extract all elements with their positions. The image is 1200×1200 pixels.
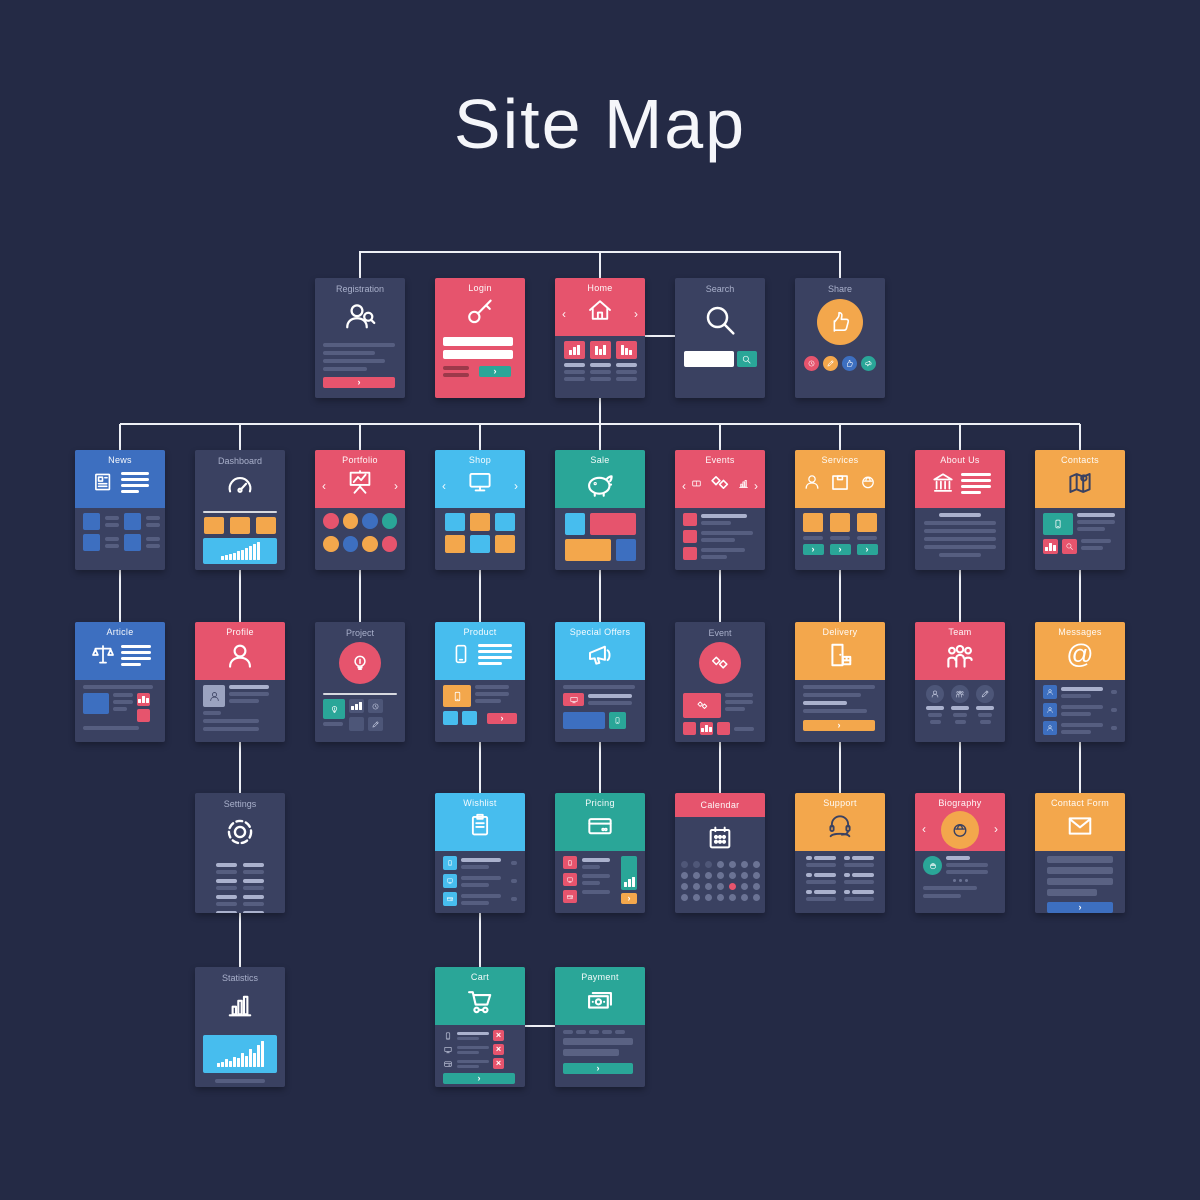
podium-chart-icon [737,477,750,490]
camera-tile [443,892,457,906]
social-icons-row [795,356,885,371]
node-label: Settings [195,793,285,809]
cart-icon [463,984,497,1018]
node-label: Wishlist [463,798,496,808]
chevron-left-icon: ‹ [442,480,446,492]
chevron-right-icon: › [634,308,638,320]
node-label: Sale [590,455,609,465]
card-body [1035,508,1125,559]
forward-button: › [621,893,637,904]
phone-icon [448,641,474,667]
node-search[interactable]: Search [675,278,765,398]
card-body [195,680,285,736]
node-label: Support [823,798,857,808]
newspaper-icon [91,469,117,495]
node-icon-area [675,294,765,346]
node-label: Registration [315,278,405,294]
clock-social-icon [804,356,819,371]
card-body: › [555,851,645,909]
chart-tile [203,1035,277,1073]
bulb-badge [339,642,381,684]
card-body [915,680,1005,729]
node-profile[interactable]: Profile [195,622,285,742]
tile [362,536,378,552]
tile [565,513,585,535]
card-body: › [435,680,525,730]
form-field [1047,878,1113,885]
handshake-tile [683,693,721,718]
node-dashboard[interactable]: Dashboard [195,450,285,570]
line [323,359,385,363]
phone-icon [443,1031,453,1041]
card-body [555,336,645,386]
node-pricing[interactable]: Pricing › [555,793,645,913]
node-label: Contacts [1061,455,1099,465]
worker-icon [949,819,971,841]
ticket-icon [690,477,703,490]
search-input [684,351,734,367]
chevron-right-icon: › [994,823,998,835]
scales-icon [89,641,117,669]
envelope-icon [1064,810,1096,842]
node-contact-form[interactable]: Contact Form › [1035,793,1125,913]
node-login[interactable]: Login › [435,278,525,398]
card-body [195,855,285,913]
node-project[interactable]: Project [315,622,405,742]
node-icon-area [195,983,285,1027]
worker-badge [941,811,979,849]
node-label: Messages [1058,627,1101,637]
chart-tile [700,722,713,735]
chart-tile [616,341,637,359]
card-body [75,508,165,556]
tile [204,517,224,534]
camera-tile [563,890,577,903]
easel-chart-icon [345,467,375,497]
card-body [435,851,525,911]
chart-tile [621,856,637,890]
tile [362,513,378,529]
bulb-icon [329,704,340,715]
phone-tile [443,856,457,870]
node-label: Cart [471,972,489,982]
checkout-button: › [443,1073,515,1084]
node-label: News [108,455,132,465]
node-special-offers[interactable]: Special Offers [555,622,645,742]
node-label: Statistics [195,967,285,983]
chevron-left-icon: ‹ [322,480,326,492]
support-person-icon [802,472,822,492]
line [323,351,375,355]
card-body [195,1027,285,1087]
card-body [315,688,405,736]
card-body: × × × › [435,1025,525,1087]
node-wishlist[interactable]: Wishlist [435,793,525,913]
door-box-icon [824,639,856,671]
tile [683,530,697,543]
remove-item-button: × [493,1058,504,1069]
tile [83,513,100,530]
tile [83,693,109,714]
tile [717,722,730,735]
magnifier-icon [741,354,752,365]
card-body [675,346,765,372]
tile [1043,513,1073,535]
house-icon [585,295,615,325]
node-support[interactable]: Support [795,793,885,913]
phone-icon [451,690,464,703]
node-label: Search [675,278,765,294]
remove-item-button: × [493,1030,504,1041]
node-sale[interactable]: Sale [555,450,645,570]
node-services[interactable]: Services › › [795,450,885,570]
form-field [1047,889,1097,896]
phone-icon [1052,518,1064,530]
node-calendar[interactable]: Calendar [675,793,765,913]
submit-button: › [1047,902,1113,913]
tile [230,517,250,534]
avatar [203,685,225,707]
form-field [563,1038,633,1045]
box-icon [827,469,853,495]
node-registration[interactable]: Registration › [315,278,405,398]
card-body [195,506,285,569]
node-biography[interactable]: Biography ‹ › [915,793,1005,913]
node-events[interactable]: Events ‹ › [675,450,765,570]
node-label: Profile [226,627,254,637]
tile [616,539,636,561]
monitor-icon [465,467,495,497]
list-tile [137,709,150,722]
banner-tile [563,712,605,729]
card-body [315,508,405,557]
headset-icon [825,810,855,840]
person-search-icon [342,298,378,334]
tile [565,539,611,561]
node-delivery[interactable]: Delivery › [795,622,885,742]
node-messages[interactable]: Messages @ [1035,622,1125,742]
thumb-social-icon [842,356,857,371]
login-button: › [479,366,511,377]
card-body: › [555,1025,645,1079]
sender-avatar [1043,685,1057,699]
monitor-tile [563,873,577,886]
chevron-left-icon: ‹ [682,480,686,492]
bank-icon [929,469,957,497]
pencil-social-icon [823,356,838,371]
card-body [75,680,165,735]
node-icon-area [195,466,285,506]
node-label: Contact Form [1051,798,1109,808]
card-body [675,688,765,740]
card-body [435,508,525,558]
calendar-icon [704,822,736,854]
line [563,685,635,689]
map-icon [1064,467,1096,499]
card-body [555,508,645,566]
credit-card-icon [443,1059,453,1069]
tile [683,722,696,735]
chart-tile [1043,539,1058,554]
megaphone-social-icon [861,356,876,371]
magnifier-icon [1065,542,1074,551]
pencil-tile [368,717,383,731]
node-icon-area [795,294,885,350]
node-label: Payment [581,972,619,982]
node-portfolio[interactable]: Portfolio ‹ › [315,450,405,570]
node-icon-area [195,809,285,855]
tile [495,535,515,553]
card-body [675,508,765,565]
monitor-tile [443,874,457,888]
phone-icon [613,716,622,725]
at-sign-icon: @ [1066,639,1093,669]
credit-card-icon [584,810,616,842]
forward-button: › [487,713,517,724]
card-body: › [435,332,525,382]
chevron-right-icon: › [754,480,758,492]
tile [683,513,697,526]
chart-tile [564,341,585,359]
node-news[interactable]: News [75,450,165,570]
member-avatar [926,685,944,703]
node-label: Delivery [823,627,858,637]
node-label: Article [106,627,133,637]
tile [124,534,141,551]
forward-button: › [803,720,875,731]
sender-avatar [1043,703,1057,717]
tile [323,536,339,552]
tile [857,513,877,532]
forward-button: › [803,544,824,555]
worker-icon [858,472,878,492]
tile [445,535,465,553]
phone-tile [462,711,477,725]
megaphone-icon [584,639,616,671]
member-avatar [976,685,994,703]
forward-button: › [830,544,851,555]
person-icon [208,690,221,703]
card-body: › › › [795,508,885,560]
worker-icon [928,861,938,871]
password-field [443,350,513,359]
sender-avatar [1043,721,1057,735]
calendar-grid [675,859,765,903]
tile [382,536,398,552]
avatar [923,856,942,875]
clock-tile [368,699,383,713]
node-event[interactable]: Event [675,622,765,742]
tile [83,534,100,551]
sitemap-canvas: Site Map Registration › Login [0,0,1200,1200]
gauge-icon [223,469,257,503]
remove-item-button: × [493,1044,504,1055]
node-icon-area [315,294,405,338]
node-contacts[interactable]: Contacts [1035,450,1125,570]
card-body [555,680,645,734]
node-about-us[interactable]: About Us [915,450,1005,570]
node-label: Login [468,283,492,293]
node-label: Product [463,627,496,637]
node-label: Biography [938,798,981,808]
tile [495,513,515,531]
node-shop[interactable]: Shop ‹ › [435,450,525,570]
tile [256,517,276,534]
handshake-icon [695,698,710,713]
line [443,366,469,370]
thumb-up-badge [817,299,863,345]
search-tile [1062,539,1077,554]
tile [590,513,636,535]
bulb-icon [348,651,372,675]
tile [323,513,339,529]
line [83,685,153,689]
node-label: About Us [940,455,979,465]
node-label: Portfolio [342,455,378,465]
tile [382,513,398,529]
bulb-tile [323,699,345,719]
line [323,367,367,371]
member-avatar [951,685,969,703]
bar-chart-icon [223,988,257,1022]
card-body [795,851,885,906]
node-label: Events [705,455,734,465]
node-payment[interactable]: Payment › [555,967,645,1087]
node-cart[interactable]: Cart × × × › [435,967,525,1087]
chevron-left-icon: ‹ [562,308,566,320]
card-body: › [1035,851,1125,913]
node-settings[interactable]: Settings [195,793,285,913]
forward-button: › [323,377,395,388]
node-label: Team [948,627,971,637]
line [215,1079,265,1083]
node-label: Pricing [585,798,615,808]
node-article[interactable]: Article [75,622,165,742]
chevron-left-icon: ‹ [922,823,926,835]
tile [470,535,490,553]
node-label: Calendar [701,800,740,810]
chevron-right-icon: › [394,480,398,492]
node-label: Services [822,455,859,465]
phone-tile [609,712,626,729]
form-field [1047,856,1113,863]
node-statistics[interactable]: Statistics [195,967,285,1087]
chart-tile [590,341,611,359]
node-label: Share [795,278,885,294]
chevron-right-icon: › [514,480,518,492]
node-team[interactable]: Team [915,622,1005,742]
node-label: Home [587,283,612,293]
banknote-icon [583,984,617,1018]
node-label: Dashboard [195,450,285,466]
tile [470,513,490,531]
chart-tile [349,699,364,713]
line [323,693,397,695]
card-body [915,508,1005,562]
form-field [563,1049,619,1056]
tile [343,536,359,552]
tile [343,513,359,529]
clipboard-icon [465,810,495,840]
gear-icon [221,813,259,851]
monitor-icon [569,695,579,705]
node-icon-area [675,817,765,859]
phone-tile [443,685,471,707]
card-body: › [315,338,405,393]
thumb-up-icon [827,309,853,335]
node-label: Project [315,622,405,638]
node-icon-area [315,638,405,688]
tile [830,513,850,532]
card-body: › [795,680,885,736]
node-icon-area [675,638,765,688]
monitor-icon [443,1045,453,1055]
node-product[interactable]: Product › [435,622,525,742]
piggy-bank-icon [583,467,617,501]
tile [803,513,823,532]
forward-button: › [857,544,878,555]
node-label: Shop [469,455,491,465]
line [939,513,981,517]
handshake-icon [707,470,733,496]
card-body [1035,680,1125,740]
pay-button: › [563,1063,633,1074]
selected-day-dot [729,883,736,890]
node-share[interactable]: Share [795,278,885,398]
tile [683,547,697,560]
magnifier-icon [700,300,740,340]
chart-tile [203,538,277,564]
line [203,511,277,513]
tile [124,513,141,530]
team-icon [943,639,977,673]
node-label: Special Offers [570,627,631,637]
node-home[interactable]: Home ‹ › [555,278,645,398]
person-icon [223,639,257,673]
form-field [1047,867,1113,874]
username-field [443,337,513,346]
handshake-badge [699,642,741,684]
image-tile [349,717,364,731]
handshake-icon [708,651,732,675]
phone-tile [563,856,577,869]
monitor-tile [563,693,584,706]
key-icon [463,295,497,329]
search-button [737,351,757,367]
node-label: Event [675,622,765,638]
headphones-tile [443,711,458,725]
line [323,343,395,347]
card-body [915,851,1005,903]
line [443,373,469,377]
tile [445,513,465,531]
chart-tile [137,693,150,706]
